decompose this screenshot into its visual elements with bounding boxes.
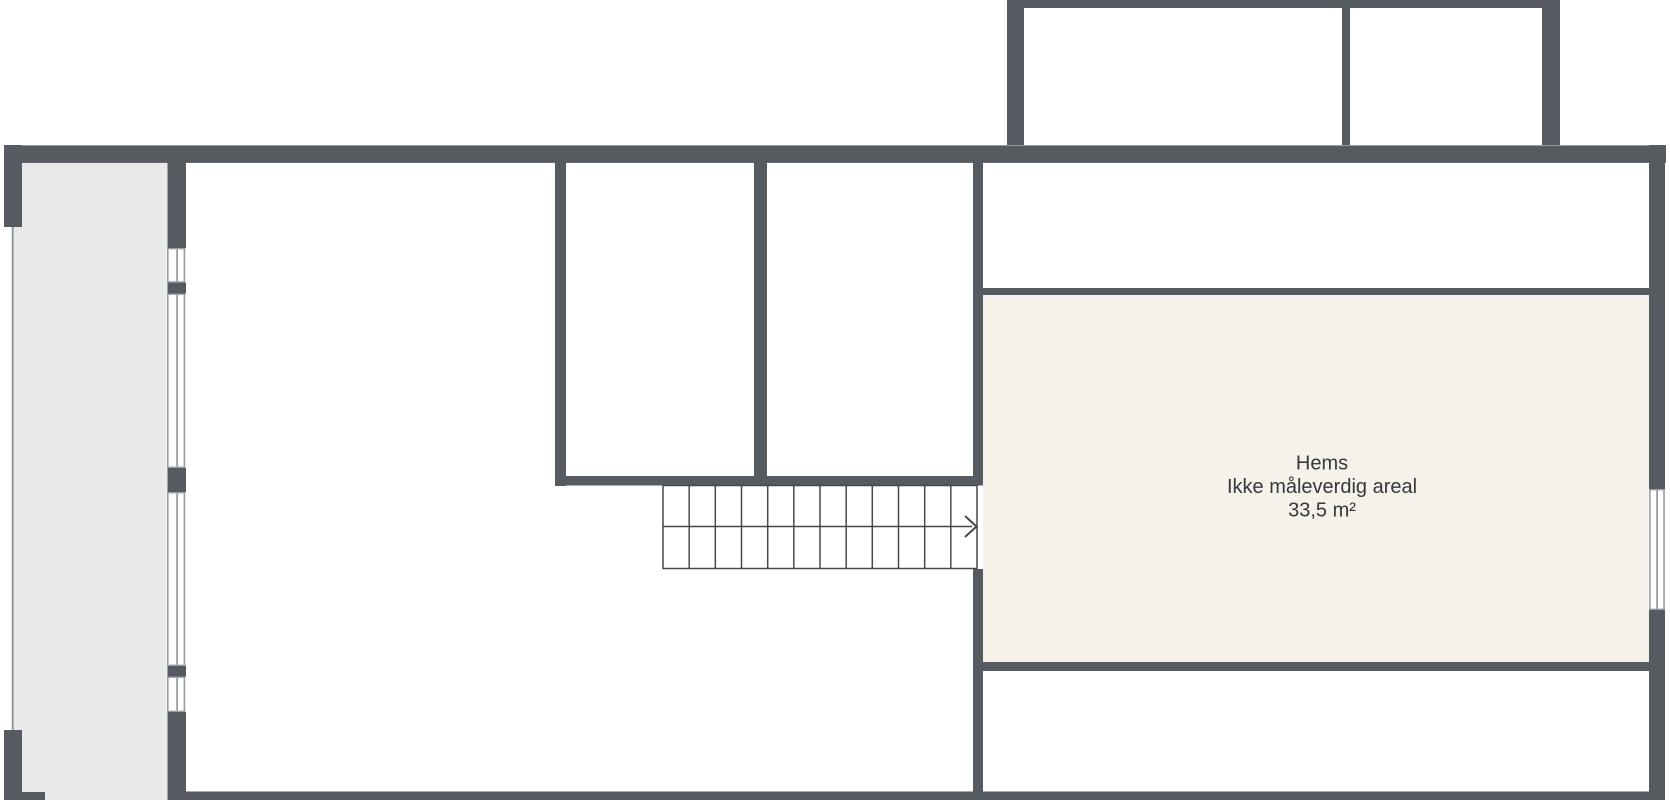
svg-text:Hems: Hems <box>1296 453 1348 475</box>
svg-text:33,5 m²: 33,5 m² <box>1288 500 1356 522</box>
svg-text:Ikke måleverdig areal: Ikke måleverdig areal <box>1227 476 1417 498</box>
